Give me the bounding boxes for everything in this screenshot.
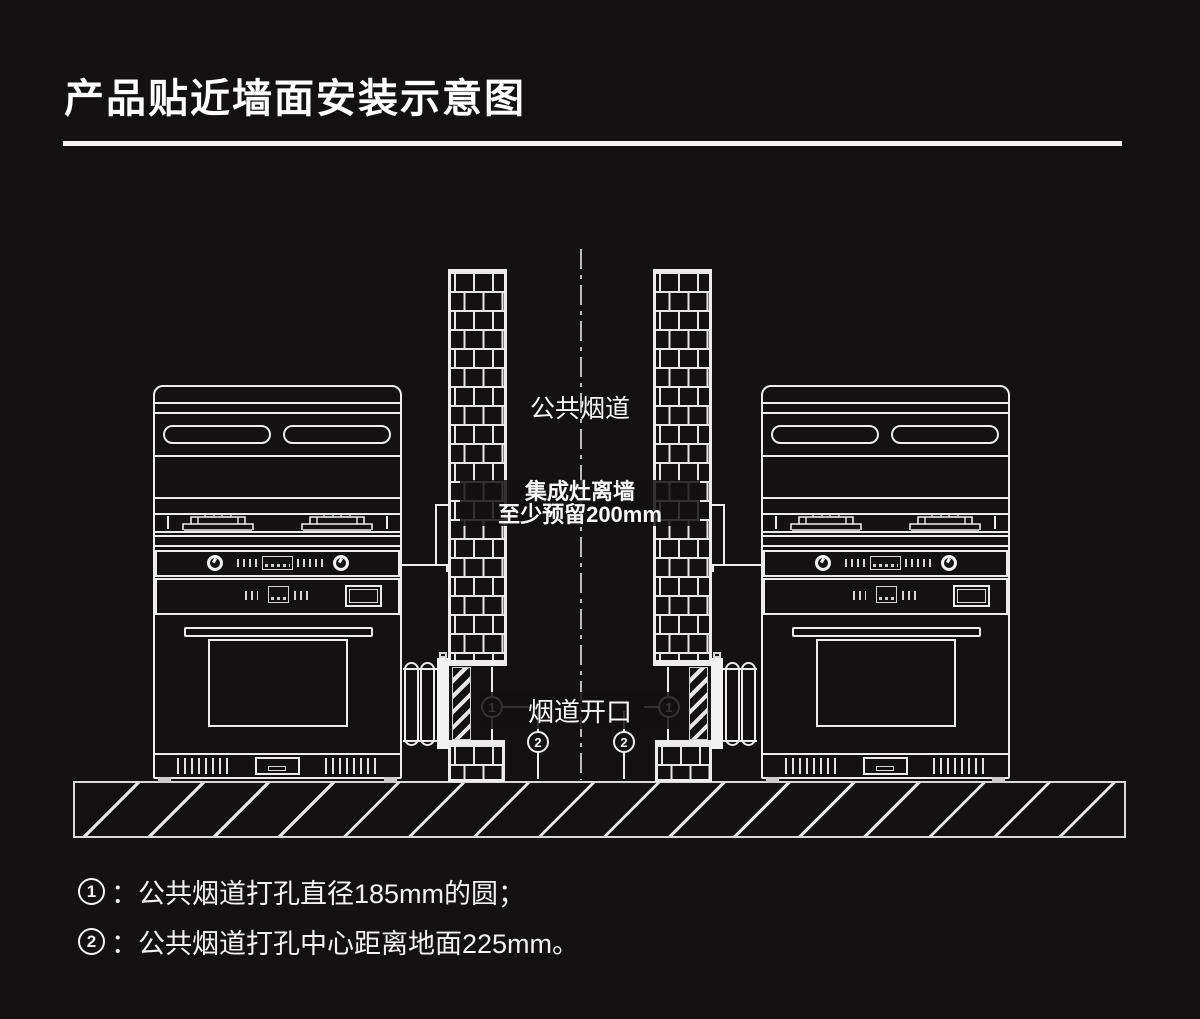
cooktop-bottom-line: [153, 531, 402, 533]
clearance-bracket-left: [402, 564, 448, 566]
corrugated-duct-right: [741, 662, 756, 746]
marker-2-left: 2: [527, 731, 549, 753]
diagram-canvas: 产品贴近墙面安装示意图 1 1 2 2: [0, 0, 1200, 1019]
base-grille-left: [177, 758, 233, 774]
clearance-bracket-left: [435, 504, 437, 566]
hood-vent-right: [283, 425, 391, 444]
base-drawer-handle: [268, 766, 286, 771]
control-buttons-icons: [297, 559, 323, 567]
cooktop-line: [153, 497, 402, 499]
control-buttons-icons: [845, 559, 865, 567]
clearance-bracket-right: [723, 504, 725, 566]
hood-vent-left: [163, 425, 271, 444]
duct-flange-left: [437, 658, 449, 749]
cooktop-bottom-line: [761, 531, 1010, 533]
oven-door-bottom-line: [761, 753, 1010, 755]
control-display: [262, 556, 293, 570]
hood-trim-line: [761, 412, 1010, 414]
flue-column-right: [653, 269, 712, 666]
brick-pattern: [451, 745, 502, 779]
base-grille-right: [325, 758, 379, 774]
corrugated-duct-left: [404, 662, 419, 746]
worktop-band: [761, 535, 1010, 547]
steam-box-window-inner: [349, 589, 378, 603]
note-marker-2: 2: [78, 928, 105, 955]
marker-digit: 2: [534, 735, 541, 750]
oven-window: [816, 639, 956, 727]
duct-flange-cap-left: [439, 652, 447, 658]
burner-grate-icon: [301, 514, 373, 531]
cooktop-end-tick: [775, 516, 777, 529]
oven-door-handle: [184, 627, 373, 637]
corrugated-duct-left: [420, 662, 435, 746]
label-flue-opening-text: 烟道开口: [528, 697, 632, 727]
title-divider: [63, 141, 1122, 146]
label-clearance: 集成灶离墙 至少预留200mm: [460, 480, 700, 526]
clearance-bracket-right: [712, 564, 761, 566]
control-display: [870, 556, 901, 570]
oven-door-handle: [792, 627, 981, 637]
note-item: 2 ：公共烟道打孔中心距离地面225mm。: [78, 922, 579, 961]
flue-column-right-base: [655, 740, 712, 782]
marker-2-right: 2: [613, 731, 635, 753]
control-knob-icon: [941, 555, 957, 571]
clearance-bracket-left: [435, 504, 450, 506]
flue-opening-hatch-right: [689, 667, 708, 740]
secondary-display: [876, 586, 897, 603]
brick-pattern: [451, 272, 504, 660]
clearance-bracket-right: [712, 564, 714, 572]
label-clearance-line2: 至少预留200mm: [460, 503, 700, 526]
control-knob-icon: [333, 555, 349, 571]
hood-trim-line: [153, 402, 402, 404]
burner-grate-icon: [182, 514, 254, 531]
secondary-buttons-icons: [902, 591, 917, 600]
control-buttons-icons: [237, 559, 257, 567]
stove-right: [761, 385, 1010, 779]
footnotes: 1 ：公共烟道打孔直径185mm的圆； 2 ：公共烟道打孔中心距离地面225mm…: [78, 872, 579, 961]
brick-pattern: [658, 745, 709, 779]
hood-vent-left: [771, 425, 879, 444]
duct-flange-right: [711, 658, 723, 749]
cooktop-end-tick: [386, 516, 388, 529]
steam-box-window-inner: [957, 589, 986, 603]
page-title: 产品贴近墙面安装示意图: [64, 66, 526, 124]
flue-column-left: [448, 269, 507, 666]
secondary-display: [268, 586, 289, 603]
hood-trim-line: [153, 412, 402, 414]
base-drawer-handle: [876, 766, 894, 771]
control-knob-icon: [815, 555, 831, 571]
note-text: ：公共烟道打孔中心距离地面225mm。: [111, 922, 579, 961]
stove-foot-right: [992, 777, 1005, 783]
note-marker-1: 1: [78, 878, 105, 905]
secondary-buttons-icons: [245, 591, 258, 600]
floor: [73, 781, 1126, 838]
control-buttons-icons: [905, 559, 931, 567]
note-text: ：公共烟道打孔直径185mm的圆；: [111, 872, 525, 911]
base-grille-left: [785, 758, 841, 774]
stove-foot-left: [158, 777, 171, 783]
note-item: 1 ：公共烟道打孔直径185mm的圆；: [78, 872, 579, 911]
label-public-flue-text: 公共烟道: [530, 395, 630, 423]
cooktop-end-tick: [167, 516, 169, 529]
control-knob-icon: [207, 555, 223, 571]
label-public-flue: 公共烟道: [480, 389, 680, 425]
brick-pattern: [656, 272, 709, 660]
duct-flange-cap-right: [713, 652, 721, 658]
flue-column-left-base: [448, 740, 505, 782]
stove-left: [153, 385, 402, 779]
secondary-buttons-icons: [294, 591, 309, 600]
stove-foot-left: [766, 777, 779, 783]
burner-grate-icon: [790, 514, 862, 531]
label-clearance-line1: 集成灶离墙: [460, 480, 700, 503]
corrugated-duct-right: [725, 662, 740, 746]
hood-vent-right: [891, 425, 999, 444]
stove-foot-right: [384, 777, 397, 783]
worktop-band: [153, 535, 402, 547]
hood-trim-line: [761, 402, 1010, 404]
label-flue-opening: 烟道开口: [480, 692, 680, 729]
oven-door-bottom-line: [153, 753, 402, 755]
hood-bottom-line: [761, 455, 1010, 457]
burner-grate-icon: [909, 514, 981, 531]
base-grille-right: [933, 758, 987, 774]
secondary-buttons-icons: [853, 591, 866, 600]
hood-bottom-line: [153, 455, 402, 457]
marker-digit: 2: [620, 735, 627, 750]
oven-window: [208, 639, 348, 727]
cooktop-line: [761, 497, 1010, 499]
clearance-bracket-left: [446, 564, 448, 572]
cooktop-end-tick: [994, 516, 996, 529]
flue-opening-hatch-left: [452, 667, 471, 740]
